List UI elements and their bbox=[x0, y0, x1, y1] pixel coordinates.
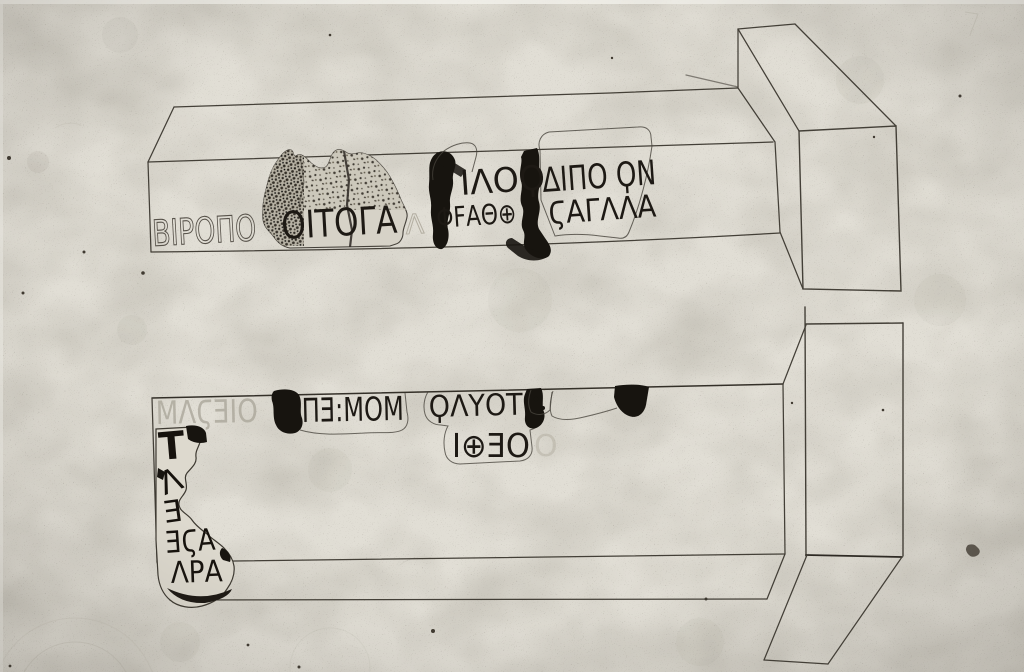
vignette-overlay bbox=[0, 0, 1024, 672]
scanned-plate: ΒΙΡΟΠΟ ΟΙΤΟΓΑ Λ ΙΛΟϘ ΦϜΑΘ⊕ ΔΙΠΟ ϘΝ ϚΑΓΛΛ… bbox=[0, 0, 1024, 672]
drawing-canvas: ΒΙΡΟΠΟ ΟΙΤΟΓΑ Λ ΙΛΟϘ ΦϜΑΘ⊕ ΔΙΠΟ ϘΝ ϚΑΓΛΛ… bbox=[0, 0, 1024, 672]
